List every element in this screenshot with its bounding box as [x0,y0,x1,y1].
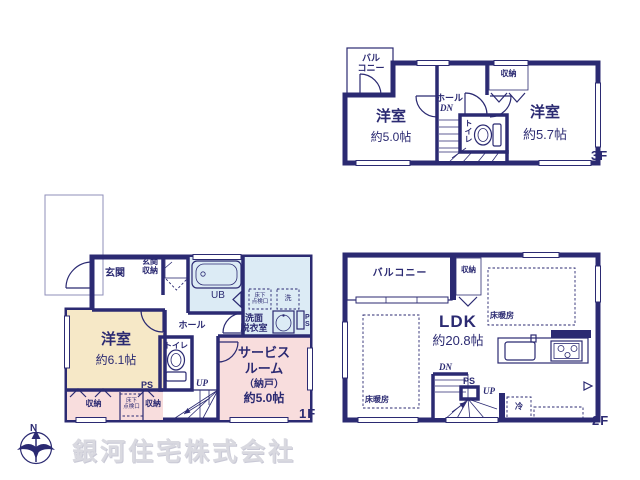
floorplan-page: バル コニー 洋室 約5.0帖 ホール DN トイレ 収納 洋室 約5.7帖 3… [0,0,640,480]
toilet-label-3f: トイレ [463,119,472,143]
folding-door-icon-2f [459,297,477,306]
floor-label-1f: 1F [299,407,316,422]
room-west-size-3f: 約5.0帖 [345,131,437,144]
toilet-label-1f: トイレ [160,342,192,351]
hall-label-3f: ホール [436,93,463,103]
entrance-storage-1f [165,258,188,278]
stove-icon [551,341,582,361]
entrance-storage-label: 玄関 収納 [136,258,164,276]
closet-label-2f: 収納 [456,266,481,274]
ps-label-1f: PS [141,380,153,390]
compass-icon [17,430,55,464]
fridge-label: 冷 [507,403,531,412]
washroom-label: 洗面 脱衣室 [236,313,272,333]
balcony-label-3f: バル コニー [349,53,393,73]
floor-label-2f: 2F [592,414,609,429]
service-room-label-2: ルーム [222,362,306,377]
stairs-up-label-2f: UP [483,386,495,396]
folding-door-icon-3f [491,93,525,102]
ps-shaft-label: P S [305,314,310,329]
kitchen-sink-icon [505,335,536,360]
floor-heating-label-2: 床暖房 [365,396,389,405]
wall-vent-mark [584,382,592,390]
floor-label-3f: 3F [591,149,608,164]
room-east-label-3f: 洋室 [499,105,591,122]
closet-left-label-1f: 収納 [67,400,120,409]
closet-right-label-1f: 収納 [141,400,165,409]
room-size-1f: 約6.1帖 [67,354,165,367]
ldk-size-label: 約20.8帖 [408,334,508,349]
room-west-label-3f: 洋室 [345,109,437,126]
room-east-size-3f: 約5.7帖 [499,128,591,143]
bath-label: UB [198,290,238,301]
service-room-label-1: サービス [222,346,306,361]
closet-label-3f: 収納 [489,70,528,79]
dashed-counter-space [534,407,583,419]
stairs-1f [172,390,218,420]
compass-north-label: N [30,423,37,434]
entrance-label: 玄関 [92,268,138,279]
closet-2f [456,258,481,295]
floor-heating-label-1: 床暖房 [490,312,514,321]
underfloor-hatch-label-2: 床下 点検口 [120,398,143,410]
stairs-dn-label-3f: DN [440,103,453,113]
underfloor-hatch-label-1: 床下 点検口 [249,293,271,305]
balcony-label-2f: バルコニー [352,268,448,279]
washer-label: 洗 [277,295,299,303]
company-watermark: 銀河住宅株式会社 [72,438,296,466]
stairs-dn-label-2f: DN [439,362,452,372]
toilet-icon-1f [166,350,186,381]
service-room-label-3: （納戸） [222,379,306,390]
ps-label-2f: PS [463,376,475,386]
stairs-up-label-1f: UP [196,378,208,388]
hall-label-1f: ホール [170,320,214,330]
service-room-label-4: 約5.0帖 [222,392,306,405]
kitchen-counter [498,330,591,363]
toilet-icon-3f [475,124,502,146]
room-label-1f: 洋室 [67,332,165,349]
